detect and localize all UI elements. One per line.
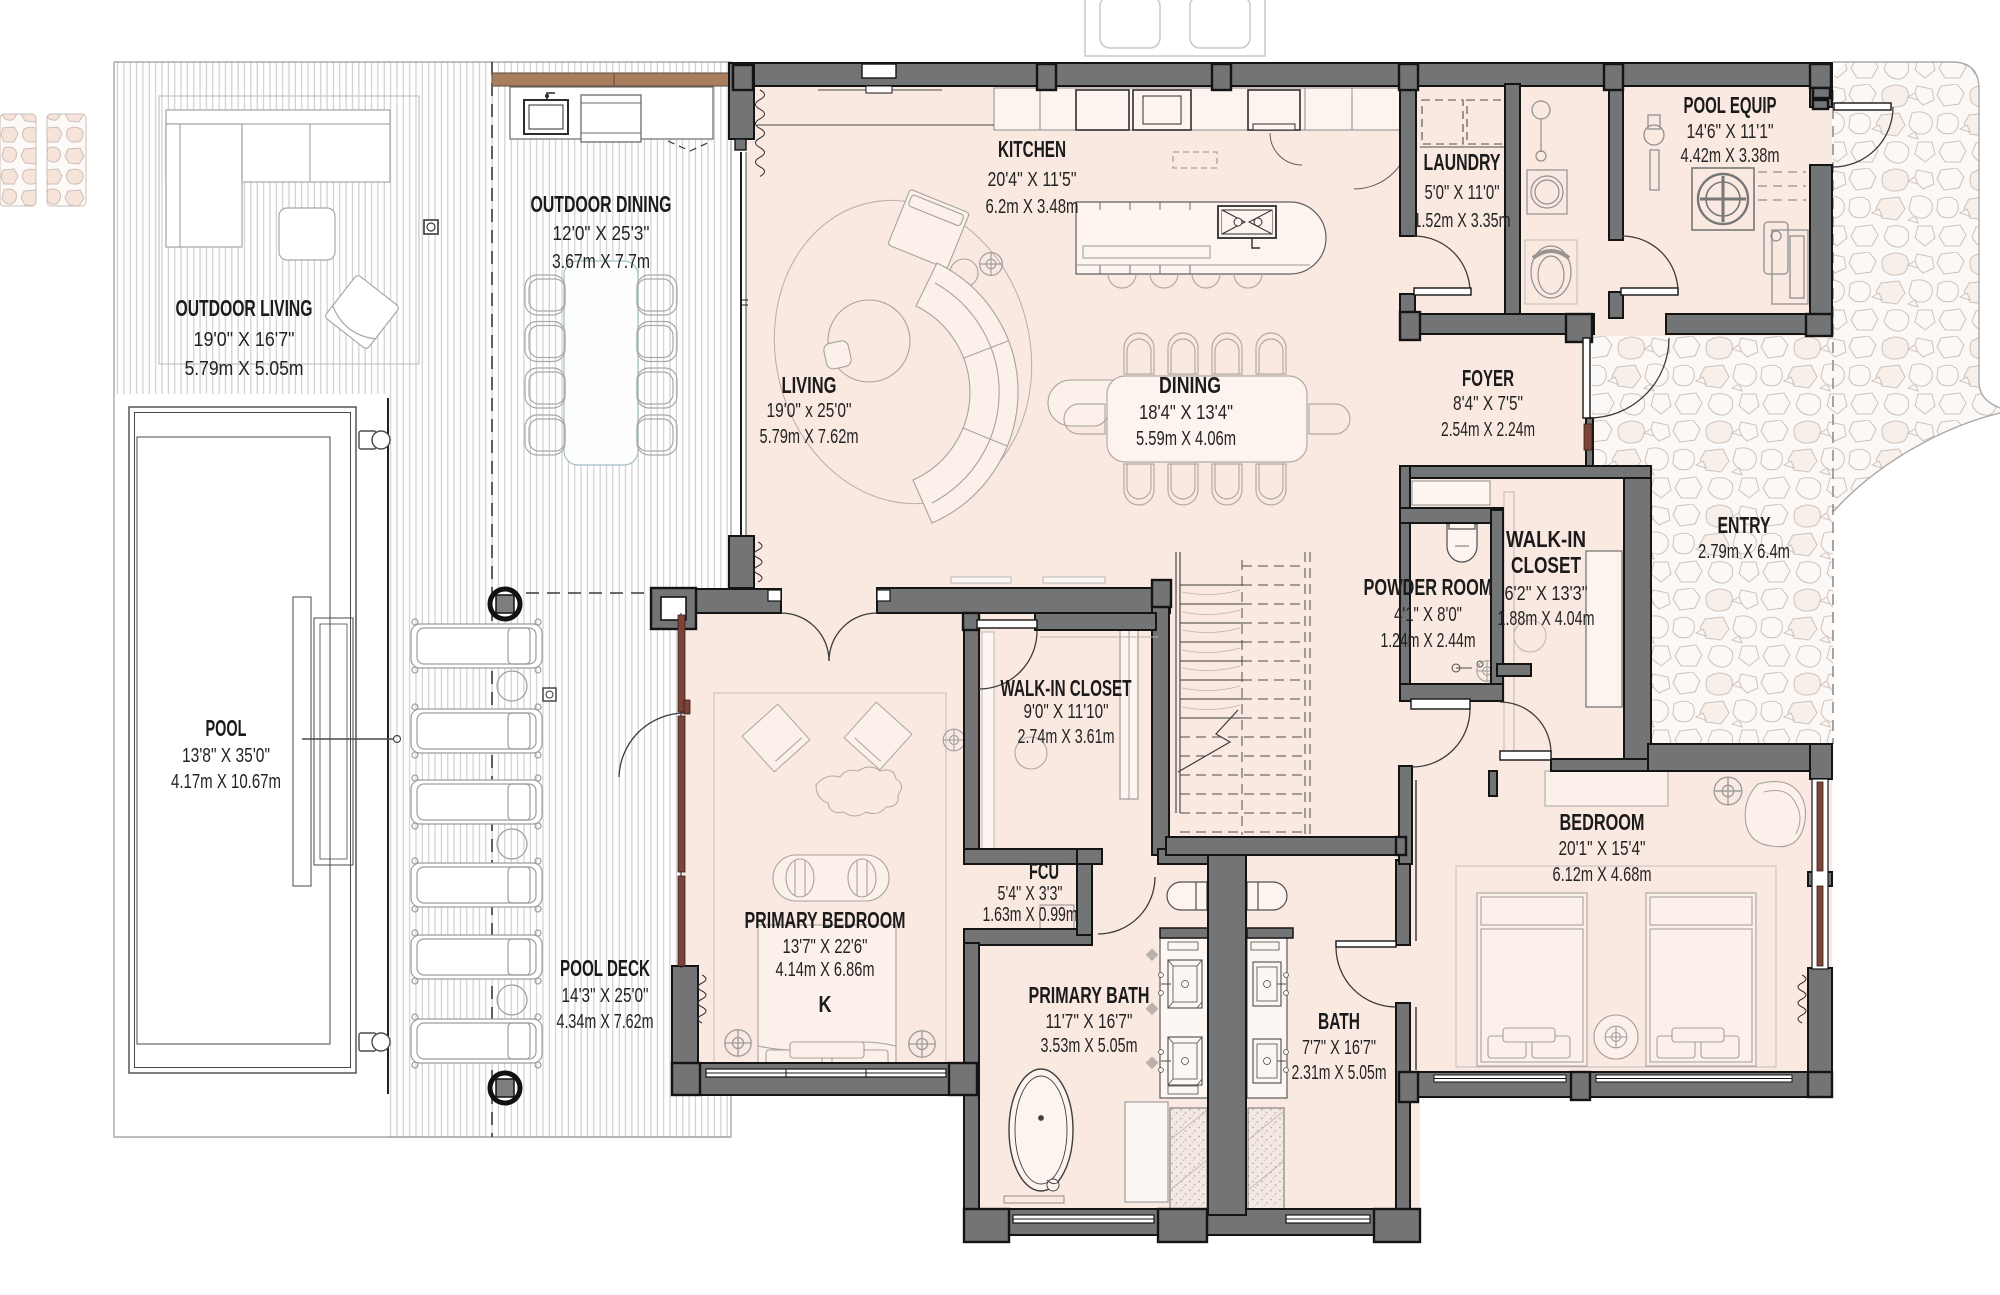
svg-text:5'0" X 11'0": 5'0" X 11'0": [1425, 182, 1500, 204]
svg-text:2.31m X 5.05m: 2.31m X 5.05m: [1292, 1062, 1387, 1084]
svg-text:7'7" X 16'7": 7'7" X 16'7": [1302, 1037, 1376, 1059]
svg-text:18'4" X 13'4": 18'4" X 13'4": [1139, 402, 1233, 424]
svg-text:13'8" X 35'0": 13'8" X 35'0": [182, 745, 270, 767]
svg-text:6.12m X 4.68m: 6.12m X 4.68m: [1553, 864, 1652, 886]
svg-text:K: K: [819, 991, 832, 1017]
svg-text:1.63m X 0.99m: 1.63m X 0.99m: [983, 904, 1078, 926]
svg-text:9'0" X 11'10": 9'0" X 11'10": [1024, 701, 1109, 723]
svg-text:DINING: DINING: [1159, 372, 1221, 398]
svg-text:ENTRY: ENTRY: [1718, 512, 1771, 538]
svg-text:BATH: BATH: [1318, 1008, 1360, 1034]
svg-text:8'4" X 7'5": 8'4" X 7'5": [1453, 393, 1523, 415]
svg-text:20'1" X 15'4": 20'1" X 15'4": [1559, 838, 1646, 860]
svg-text:14'6" X 11'1": 14'6" X 11'1": [1687, 121, 1774, 143]
svg-text:6'2" X 13'3": 6'2" X 13'3": [1505, 583, 1588, 605]
svg-text:2.79m X 6.4m: 2.79m X 6.4m: [1698, 541, 1790, 563]
svg-text:3.67m X 7.7m: 3.67m X 7.7m: [552, 251, 650, 273]
svg-text:OUTDOOR LIVING: OUTDOOR LIVING: [176, 295, 313, 321]
svg-text:5.59m X 4.06m: 5.59m X 4.06m: [1136, 428, 1236, 450]
svg-text:WALK-IN: WALK-IN: [1506, 526, 1586, 552]
svg-text:19'0" x 25'0": 19'0" x 25'0": [767, 400, 852, 422]
svg-text:4.42m X 3.38m: 4.42m X 3.38m: [1681, 145, 1780, 167]
svg-text:2.54m X 2.24m: 2.54m X 2.24m: [1441, 419, 1535, 441]
svg-text:14'3" X 25'0": 14'3" X 25'0": [562, 985, 649, 1007]
svg-text:CLOSET: CLOSET: [1511, 552, 1581, 578]
svg-text:POWDER ROOM: POWDER ROOM: [1364, 574, 1493, 600]
svg-text:KITCHEN: KITCHEN: [998, 136, 1066, 162]
svg-text:FCU: FCU: [1029, 858, 1059, 884]
svg-text:POOL EQUIP: POOL EQUIP: [1684, 92, 1777, 118]
svg-text:4.14m X 6.86m: 4.14m X 6.86m: [776, 959, 875, 981]
svg-text:2.74m X 3.61m: 2.74m X 3.61m: [1018, 726, 1115, 748]
svg-text:5'4" X 3'3": 5'4" X 3'3": [998, 883, 1063, 905]
svg-text:1.24m X 2.44m: 1.24m X 2.44m: [1381, 630, 1476, 652]
svg-text:4.17m X 10.67m: 4.17m X 10.67m: [171, 771, 281, 793]
svg-text:PRIMARY BEDROOM: PRIMARY BEDROOM: [745, 907, 906, 933]
svg-text:POOL: POOL: [206, 715, 247, 741]
svg-text:LAUNDRY: LAUNDRY: [1424, 149, 1501, 175]
svg-text:4.34m X 7.62m: 4.34m X 7.62m: [557, 1011, 654, 1033]
svg-text:OUTDOOR DINING: OUTDOOR DINING: [531, 191, 672, 217]
svg-text:1.88m X 4.04m: 1.88m X 4.04m: [1498, 608, 1595, 630]
svg-text:POOL DECK: POOL DECK: [560, 955, 650, 981]
svg-text:5.79m X 7.62m: 5.79m X 7.62m: [760, 426, 859, 448]
svg-text:WALK-IN CLOSET: WALK-IN CLOSET: [1001, 675, 1132, 701]
svg-text:20'4" X 11'5": 20'4" X 11'5": [988, 169, 1077, 191]
svg-text:1.52m X 3.35m: 1.52m X 3.35m: [1414, 210, 1511, 232]
svg-text:PRIMARY BATH: PRIMARY BATH: [1029, 982, 1150, 1008]
svg-text:5.79m X 5.05m: 5.79m X 5.05m: [185, 358, 304, 380]
svg-text:FOYER: FOYER: [1462, 365, 1514, 391]
svg-text:11'7" X 16'7": 11'7" X 16'7": [1046, 1011, 1133, 1033]
svg-text:BEDROOM: BEDROOM: [1560, 809, 1645, 835]
svg-text:13'7" X 22'6": 13'7" X 22'6": [783, 936, 868, 958]
svg-text:3.53m X 5.05m: 3.53m X 5.05m: [1041, 1035, 1138, 1057]
svg-text:4'1" X 8'0": 4'1" X 8'0": [1394, 604, 1462, 626]
svg-text:12'0" X 25'3": 12'0" X 25'3": [553, 223, 650, 245]
svg-text:LIVING: LIVING: [782, 372, 837, 398]
svg-text:6.2m X 3.48m: 6.2m X 3.48m: [986, 196, 1079, 218]
svg-text:19'0" X 16'7": 19'0" X 16'7": [194, 329, 295, 351]
